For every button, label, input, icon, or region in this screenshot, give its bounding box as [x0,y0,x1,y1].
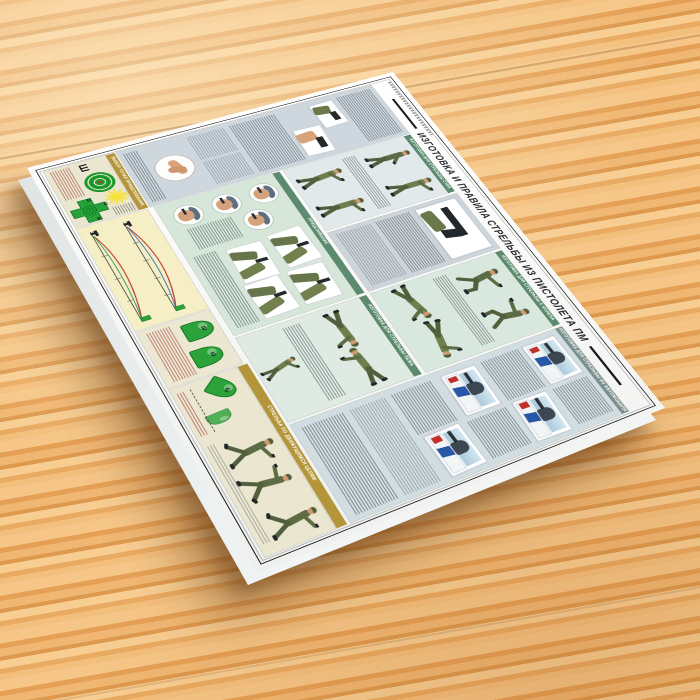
sight-picture-glyph: Ш [95,217,101,221]
soldier-photo-standing-ready [358,141,419,174]
annotation-text [176,392,208,437]
aiming-face-inset [244,180,284,206]
arm-position-inset [148,151,201,185]
fallen-target [204,408,234,428]
chest-target: Ш [188,343,227,369]
aiming-face-inset [238,206,278,233]
falling-target: Ш [203,376,240,401]
chest-target: Ш [179,317,217,343]
soldier-photo-lying [413,316,467,364]
soldier-photo-standing-aim [310,188,374,224]
aiming-face-inset [207,191,247,218]
photo-scene: ИЗГОТОВКА И ПРАВИЛА СТРЕЛЬБЫ ИЗ ПИСТОЛЕТ… [0,0,700,700]
sight-picture-glyph: Ш [76,163,91,173]
soldier-photo-standing-aim [379,168,441,203]
